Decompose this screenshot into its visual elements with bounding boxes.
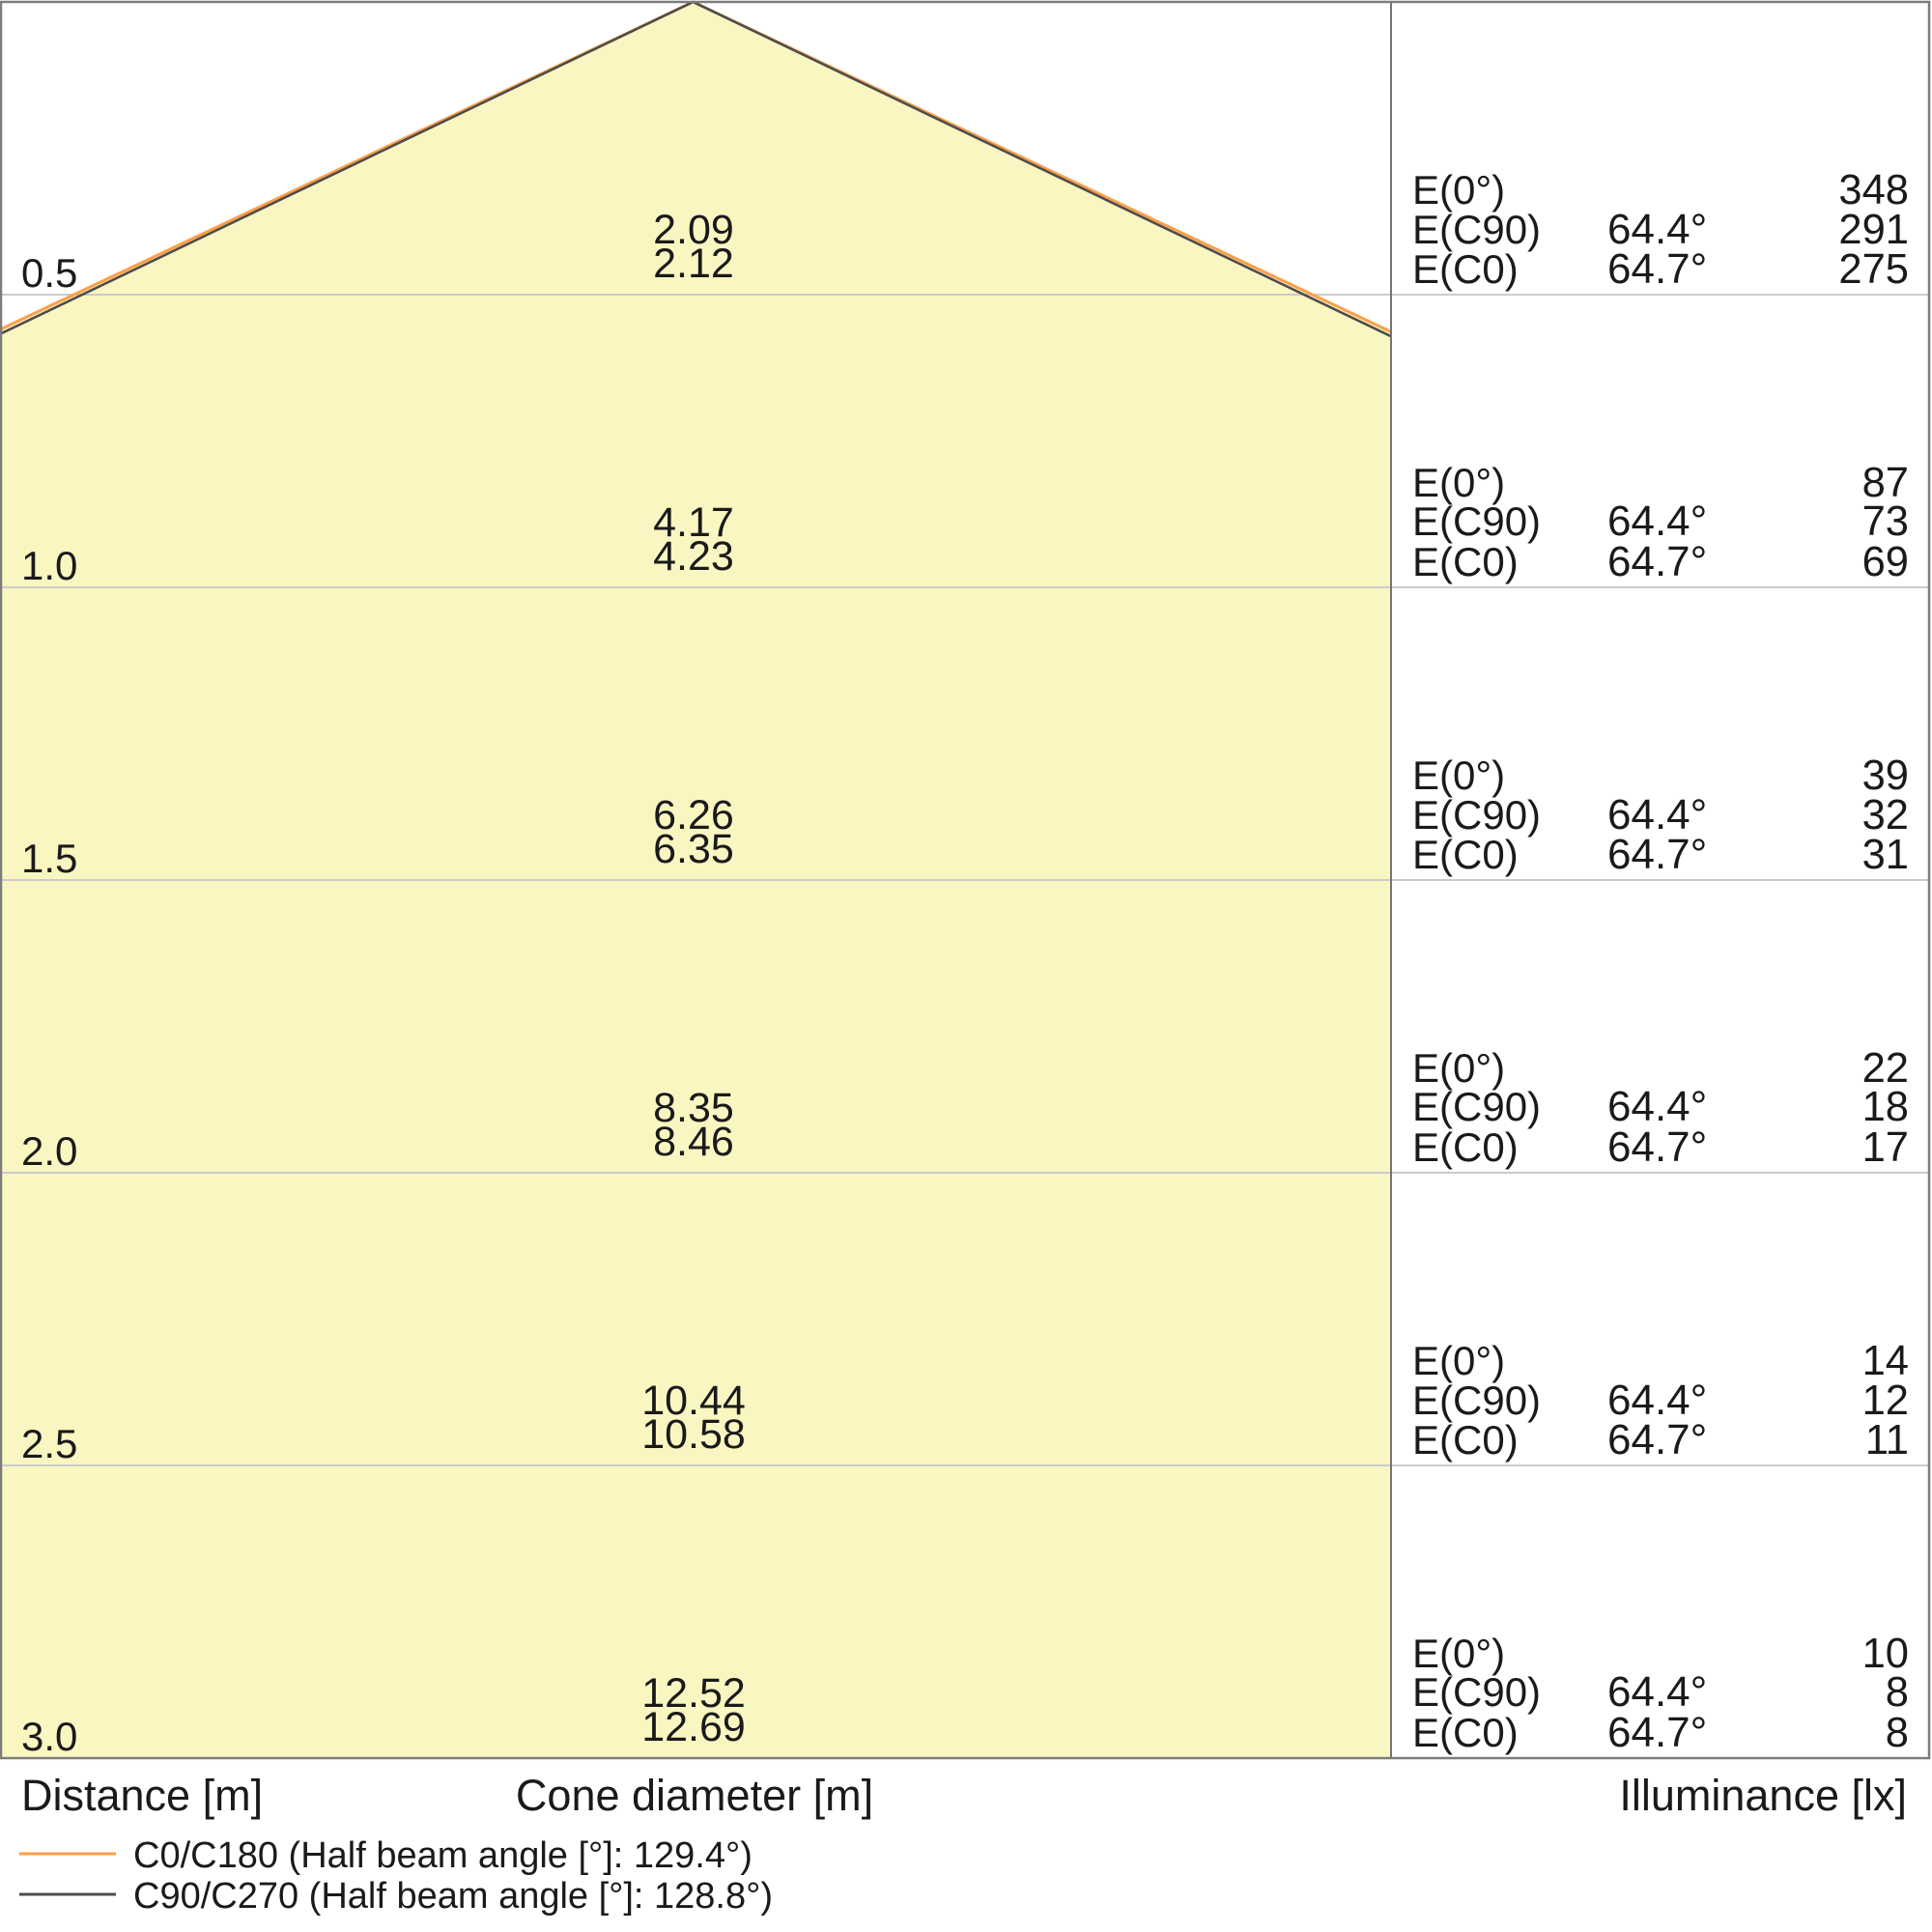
svg-text:64.7°: 64.7° xyxy=(1607,1123,1707,1171)
svg-text:2.0: 2.0 xyxy=(21,1128,77,1174)
svg-text:E(C90): E(C90) xyxy=(1412,498,1541,544)
svg-text:E(C0): E(C0) xyxy=(1412,1417,1519,1463)
svg-text:E(C0): E(C0) xyxy=(1412,246,1519,292)
svg-text:11: 11 xyxy=(1865,1417,1909,1463)
svg-text:8: 8 xyxy=(1886,1669,1909,1716)
svg-text:64.7°: 64.7° xyxy=(1607,1709,1707,1756)
svg-text:E(C0): E(C0) xyxy=(1412,539,1519,584)
svg-text:E(C0): E(C0) xyxy=(1412,832,1519,877)
svg-text:E(C90): E(C90) xyxy=(1412,1378,1541,1423)
svg-text:Illuminance [lx]: Illuminance [lx] xyxy=(1619,1771,1907,1820)
svg-text:69: 69 xyxy=(1862,539,1909,585)
svg-text:Distance [m]: Distance [m] xyxy=(21,1771,263,1820)
svg-text:E(C90): E(C90) xyxy=(1412,207,1541,252)
svg-text:17: 17 xyxy=(1862,1124,1909,1171)
svg-text:64.7°: 64.7° xyxy=(1607,1416,1707,1463)
svg-text:E(0°): E(0°) xyxy=(1412,1338,1505,1383)
svg-text:10.58: 10.58 xyxy=(641,1411,746,1458)
svg-text:73: 73 xyxy=(1862,498,1909,545)
svg-text:3.0: 3.0 xyxy=(21,1714,77,1759)
svg-text:64.7°: 64.7° xyxy=(1607,831,1707,878)
svg-text:31: 31 xyxy=(1862,832,1909,878)
svg-text:E(0°): E(0°) xyxy=(1412,167,1505,213)
svg-text:C90/C270 (Half beam angle [°]:: C90/C270 (Half beam angle [°]: 128.8°) xyxy=(133,1876,773,1917)
svg-text:0.5: 0.5 xyxy=(21,250,77,296)
svg-text:E(0°): E(0°) xyxy=(1412,753,1505,798)
svg-text:E(C0): E(C0) xyxy=(1412,1710,1519,1755)
svg-text:E(C90): E(C90) xyxy=(1412,792,1541,838)
svg-text:6.35: 6.35 xyxy=(653,826,734,872)
svg-text:8.46: 8.46 xyxy=(653,1119,734,1165)
svg-text:8: 8 xyxy=(1886,1710,1909,1756)
svg-text:E(C90): E(C90) xyxy=(1412,1084,1541,1129)
svg-text:18: 18 xyxy=(1862,1084,1909,1130)
svg-text:Cone diameter [m]: Cone diameter [m] xyxy=(516,1771,873,1820)
svg-text:E(C0): E(C0) xyxy=(1412,1124,1519,1170)
svg-text:2.12: 2.12 xyxy=(653,241,734,287)
svg-text:1.5: 1.5 xyxy=(21,836,77,881)
svg-text:275: 275 xyxy=(1838,246,1909,293)
svg-text:1.0: 1.0 xyxy=(21,543,77,588)
svg-text:64.7°: 64.7° xyxy=(1607,245,1707,293)
svg-text:12.69: 12.69 xyxy=(641,1704,746,1750)
svg-text:2.5: 2.5 xyxy=(21,1421,77,1466)
svg-text:64.7°: 64.7° xyxy=(1607,538,1707,585)
svg-text:4.23: 4.23 xyxy=(653,533,734,580)
svg-text:E(C90): E(C90) xyxy=(1412,1669,1541,1715)
svg-text:C0/C180 (Half beam angle [°]:: C0/C180 (Half beam angle [°]: 129.4°) xyxy=(133,1835,753,1876)
